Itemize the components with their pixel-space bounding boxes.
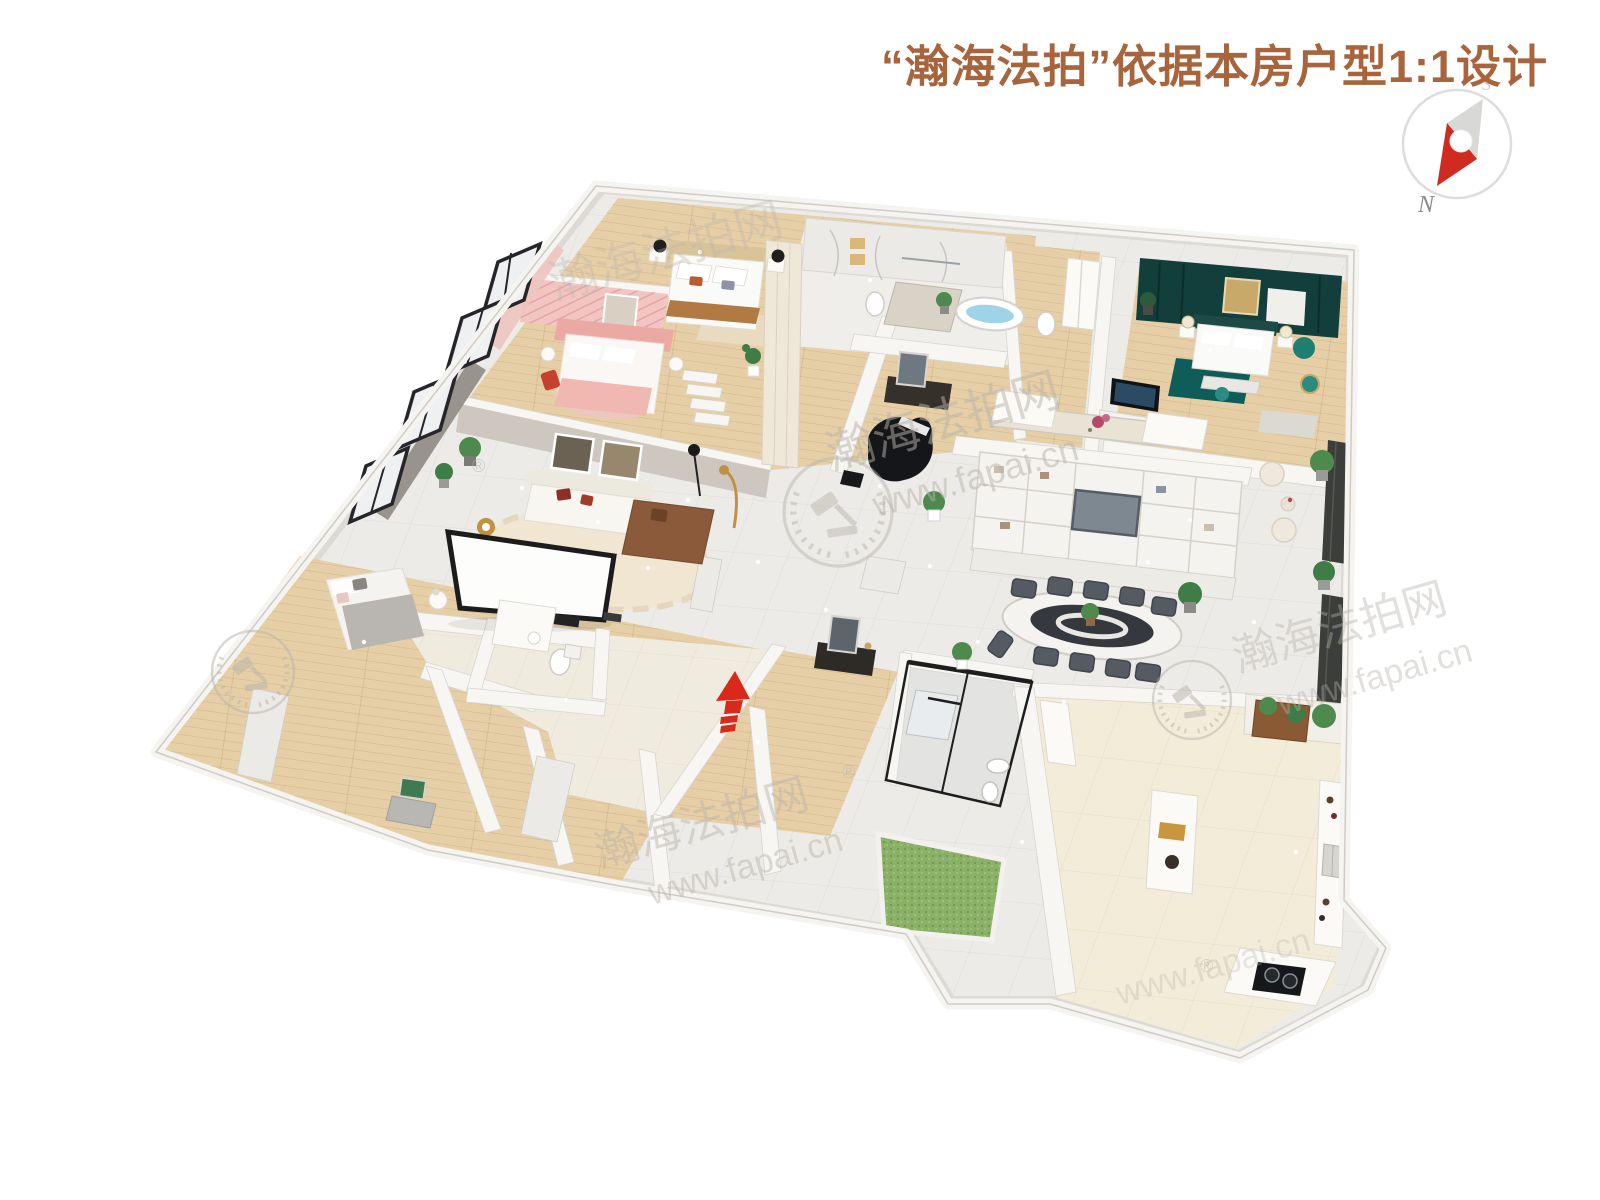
floorplan-scene: 瀚海法拍网 瀚海法拍网 www.fapai.cn 瀚海法拍网 www.fapai… [0,0,1600,1200]
toilet [982,782,998,802]
toilet [1037,312,1055,336]
compass-hub [1450,130,1472,152]
shelf-item [1156,486,1166,493]
gold-wall-art [1223,278,1260,315]
table-lamp [1280,326,1292,338]
tray-dish [482,523,490,531]
niche-shelf [850,238,865,249]
dining-chair [1119,586,1145,606]
plant-pot [748,366,759,376]
counter-item [1319,915,1325,921]
dining-chair [1069,652,1095,672]
plant-pot [1143,306,1153,315]
plant [1140,292,1156,308]
lamp [433,589,440,596]
side-cabinet [492,600,556,652]
arrow-shaft [724,700,743,714]
counter-item [1323,899,1330,906]
side-table [541,347,555,361]
cream-chair [1272,518,1296,542]
wall-art [603,294,638,327]
bowl [1165,855,1179,869]
table-lamp [1182,316,1194,328]
watermark-registered: ® [1200,956,1213,976]
hallway [1062,258,1100,330]
compass-north-label: N [1417,192,1436,218]
dining-chair [1033,646,1059,666]
teal-armchair [1293,337,1315,359]
dining-chair [1151,596,1177,616]
plant-pot [1086,618,1095,626]
pillar [860,556,906,594]
toilet [866,292,884,316]
counter-item [1327,797,1334,804]
vase [865,643,872,650]
brown-pillow [650,508,668,522]
shelf-item [1204,524,1214,531]
watermark-registered: ® [842,762,855,782]
shower-platform [884,282,962,332]
toilet-tank [564,644,582,660]
flower [1288,498,1292,502]
console-art [897,352,928,387]
side-table [669,357,683,371]
cushion [721,280,735,290]
sink [987,759,1009,773]
watermark-registered: ® [472,456,485,476]
burner [1283,974,1297,988]
niche-shelf [850,254,865,265]
dining-chair [1135,662,1161,682]
kitchen-island [1146,790,1198,894]
cactus-arm [742,344,750,352]
gold-tray [1158,822,1186,841]
cushion [689,276,703,286]
wall-art [551,434,593,473]
cream-chair [1260,462,1284,486]
teal-throw [1215,387,1229,401]
table-lamp [772,250,785,263]
plant [1259,697,1277,715]
shelf-item [1000,522,1010,529]
leaning-art [828,616,860,653]
compass: N S [1403,74,1511,218]
page-title: “瀚海法拍”依据本房户型1:1设计 [881,30,1548,95]
dining-chair [1083,580,1109,600]
closet-tall-face [762,240,802,468]
wall-light-segment [1266,288,1306,326]
teal-stool [1301,375,1319,393]
red-pillow [556,488,571,501]
sofa-chaise-brown [622,500,714,564]
green-art [399,778,425,799]
dining-chair [1011,578,1037,598]
vase [528,632,540,644]
pink-pillow [336,592,350,604]
flower-bouquet [1102,414,1110,422]
shelf-tv [1072,490,1140,536]
page: 瀚海法拍网 瀚海法拍网 www.fapai.cn 瀚海法拍网 www.fapai… [0,0,1600,1200]
dining-chair [1105,658,1131,678]
counter-item [1331,813,1337,819]
marble-speck [1088,428,1092,432]
dining-chair [1047,576,1073,596]
wall-art [599,441,641,480]
